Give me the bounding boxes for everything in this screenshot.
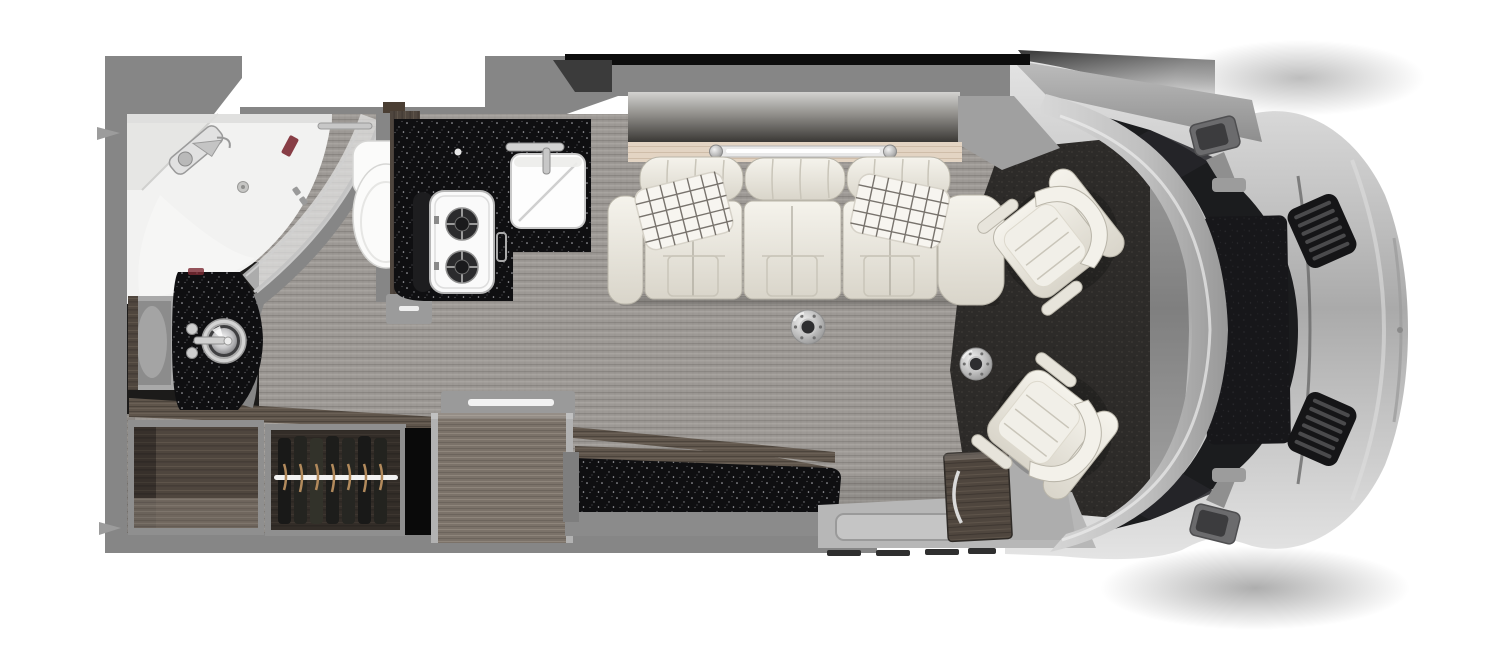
shadow-under-front [1100,546,1410,630]
led-strip-light [710,145,897,158]
bench-end-block [563,452,579,522]
shower-wall-shade-top [127,114,332,123]
window-band [628,92,960,144]
mirror-cabinet-door [128,296,176,390]
wardrobe-rod [274,475,398,480]
awning-rail [565,54,1030,65]
countertop-knob [455,149,462,156]
table-mount-rear [960,348,992,380]
motorhome-floorplan: Class B motorhome floor plan - top-down … [0,0,1500,667]
wardrobe [265,424,406,536]
vanity-towel-accent [188,268,204,275]
open-cabinet [128,420,264,535]
table-mount-front [791,310,825,344]
galley-base-handle [399,306,419,311]
top-wall-bath-block [105,56,242,114]
tall-cabinet-refrigerator [431,391,575,543]
entry-step-tread [836,514,958,540]
front-emblem-dot [1397,327,1403,333]
two-burner-cooktop [413,191,506,293]
burner-rear [446,208,478,240]
burner-front [446,251,478,283]
top-wall-galley-block [485,56,561,116]
floorplan-canvas: Class B motorhome floor plan - top-down … [0,0,1500,667]
shower-drain-center [241,185,245,189]
bench-base [565,512,857,536]
cabinet-gap [405,428,433,535]
three-seat-sofa [608,157,1004,306]
grab-bar [318,123,372,129]
